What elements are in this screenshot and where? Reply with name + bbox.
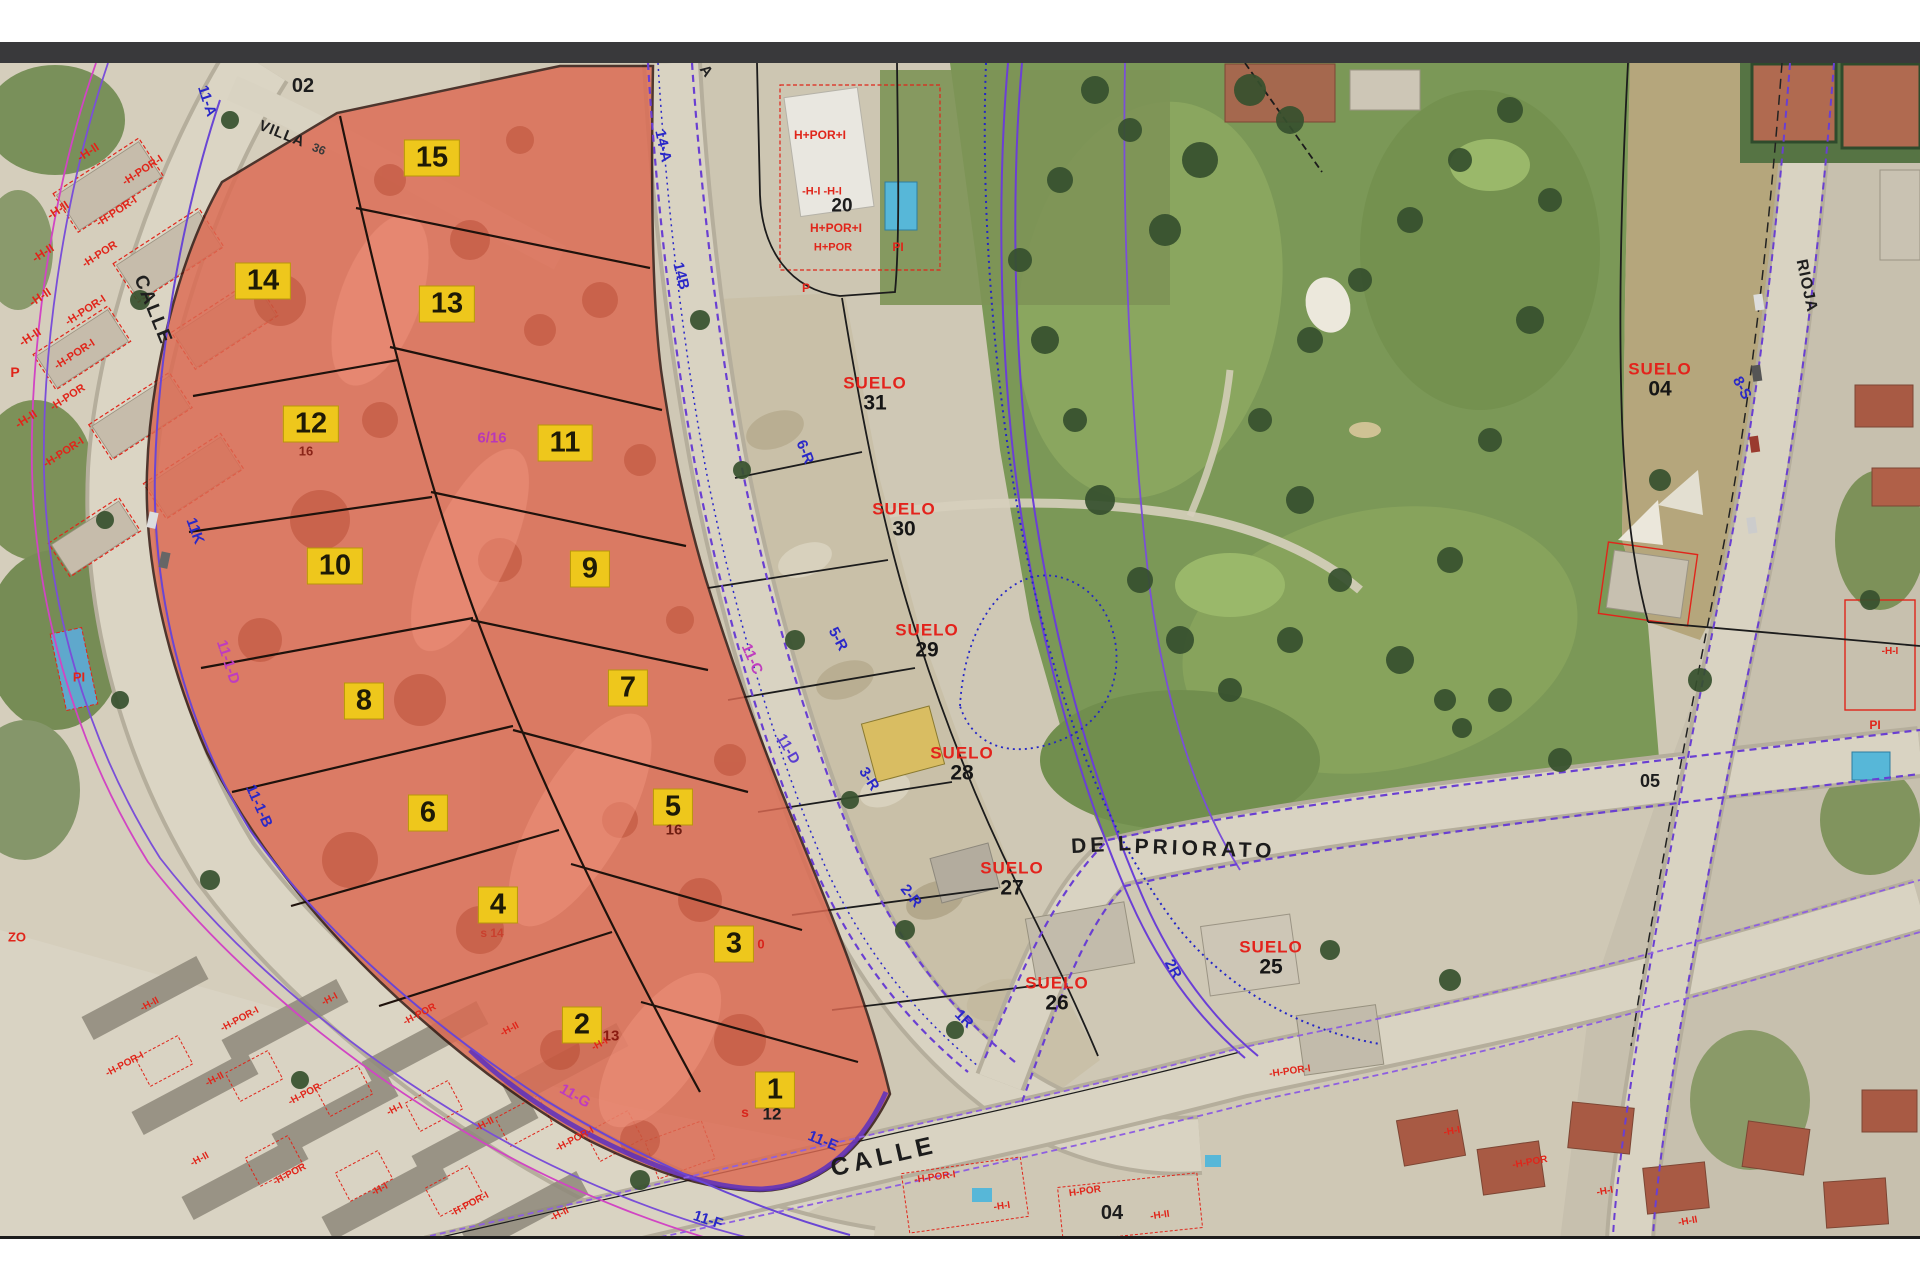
cadastral-annotation: -H-POR-I (64, 294, 108, 328)
road-code-label: 2-R (898, 882, 925, 910)
cadastral-annotation: -H-II (139, 996, 161, 1014)
suelo-parcel-label: SUELO31 (843, 375, 907, 414)
cadastral-annotation: PI (892, 241, 903, 253)
parcel-label: 13 (419, 286, 475, 323)
parcel-label: 6 (408, 795, 448, 832)
parcel-label: 3 (714, 926, 754, 963)
cadastral-annotation: -H-II (474, 1116, 496, 1134)
map-number-label: A (697, 62, 716, 79)
street-name-label: CALLE (130, 272, 175, 347)
cadastral-annotation: -H-I -H-I (802, 187, 842, 198)
road-code-label: 6-R (794, 438, 817, 466)
parcel-label: 5 (653, 789, 693, 826)
cadastral-annotation: -H-II (204, 1071, 226, 1089)
parcel-label: 14 (235, 263, 291, 300)
road-code-label: 2R (1162, 957, 1184, 981)
cadastral-annotation: P (10, 365, 19, 379)
cadastral-annotation: -H-II (499, 1021, 521, 1039)
road-code-label: 11-D (774, 732, 803, 767)
cadastral-annotation: -H-I (385, 1102, 404, 1119)
window-title-bar (0, 42, 1920, 63)
road-code-label: 14-A (652, 129, 673, 164)
suelo-word: SUELO (1628, 361, 1692, 378)
suelo-word: SUELO (930, 745, 994, 762)
suelo-word: SUELO (980, 860, 1044, 877)
parcel-label: 7 (608, 670, 648, 707)
cadastral-annotation: -H-II (17, 326, 43, 349)
parcel-sub-number: 16 (299, 445, 313, 458)
cadastral-annotation: -H-II (45, 199, 71, 222)
cadastral-annotation: -H-POR-I (121, 154, 165, 188)
map-number-label: 05 (1640, 772, 1660, 790)
road-code-label: 11-1-B (243, 782, 275, 829)
cadastral-annotation: H+POR+I (794, 129, 846, 141)
road-code-label: 11-A (195, 84, 219, 119)
suelo-parcel-label: SUELO27 (980, 860, 1044, 899)
cadastral-annotation: -H-POR (1512, 1155, 1549, 1171)
cadastral-annotation: -H-II (1150, 1210, 1171, 1223)
parcel-label: 4 (478, 887, 518, 924)
cadastral-annotation: -H-I (1443, 1126, 1461, 1139)
street-name-label: DE L (1071, 833, 1136, 857)
road-code-label: 5-R (826, 625, 851, 653)
suelo-number: 28 (930, 763, 994, 784)
road-code-label: 11-1-D (214, 638, 242, 685)
road-code-label: 11-F (691, 1208, 724, 1232)
parcel-sub-number: s 14 (480, 927, 503, 939)
suelo-number: 26 (1025, 993, 1089, 1014)
cadastral-annotation: -H-II (30, 242, 56, 265)
cadastral-annotation: PI (1869, 719, 1880, 731)
parcel-label: 12 (283, 406, 339, 443)
parcel-label: 10 (307, 548, 363, 585)
suelo-number: 31 (843, 393, 907, 414)
suelo-word: SUELO (1025, 975, 1089, 992)
road-code-label: 3-R (856, 765, 882, 793)
cadastral-annotation: -H-II (1678, 1215, 1699, 1228)
parcel-sub-number: 6/16 (477, 431, 506, 446)
cadastral-annotation: -H-POR-I (95, 195, 139, 229)
map-number-label: 02 (292, 76, 314, 96)
map-number-label: 20 (831, 197, 852, 216)
suelo-parcel-label: SUELO30 (872, 501, 936, 540)
parcel-sub-number: 16 (666, 823, 683, 838)
cadastral-annotation: -H-I (1596, 1186, 1614, 1199)
cadastral-annotation: -H-POR-I (449, 1191, 490, 1219)
parcel-sub-number: 0 (757, 938, 764, 951)
parcel-sub-number: 12 (763, 1106, 782, 1123)
cadastral-annotation: -H-POR (81, 240, 120, 271)
cadastral-annotation: -H-POR-I (42, 436, 86, 470)
cadastral-annotation: -H-II (27, 286, 53, 309)
cadastral-annotation: -H-POR-I (104, 1051, 145, 1079)
cadastral-annotation: P (802, 282, 810, 294)
road-code-label: 14B (670, 261, 691, 291)
suelo-number: 29 (895, 640, 959, 661)
suelo-number: 04 (1628, 379, 1692, 400)
road-code-label: 11-G (557, 1081, 593, 1110)
map-labels-layer: 1234567891011121314156/161616013s 14s12S… (0, 0, 1920, 1280)
cadastral-annotation: -H-POR-I (914, 1170, 957, 1186)
road-code-label: 11-C (739, 641, 766, 676)
suelo-word: SUELO (872, 501, 936, 518)
cadastral-annotation: -H-POR-I (554, 1126, 595, 1154)
suelo-word: SUELO (1239, 939, 1303, 956)
cadastral-annotation: -H-II (549, 1206, 571, 1224)
cadastral-annotation: -H-II (13, 408, 39, 431)
suelo-parcel-label: SUELO04 (1628, 361, 1692, 400)
map-viewport[interactable]: 1234567891011121314156/161616013s 14s12S… (0, 0, 1920, 1280)
cadastral-annotation: -H-I (320, 992, 339, 1009)
parcel-sub-number: s (741, 1105, 749, 1119)
street-name-label: RIOJA (1793, 258, 1820, 314)
top-white-strip (0, 0, 1920, 42)
suelo-parcel-label: SUELO29 (895, 622, 959, 661)
cadastral-annotation: -H-POR-I (53, 338, 97, 372)
map-number-label: 36 (311, 141, 328, 157)
cadastral-annotation: -H-II (189, 1151, 211, 1169)
road-code-label: 8-S (1730, 374, 1754, 402)
suelo-parcel-label: SUELO28 (930, 745, 994, 784)
cadastral-annotation: -H-POR (402, 1002, 438, 1028)
cadastral-annotation: H+POR (814, 243, 852, 254)
cadastral-annotation: -H-I (1882, 647, 1899, 657)
parcel-label: 9 (570, 551, 610, 588)
road-code-label: 11K (183, 516, 206, 546)
suelo-parcel-label: SUELO25 (1239, 939, 1303, 978)
parcel-label: 8 (344, 683, 384, 720)
suelo-number: 30 (872, 519, 936, 540)
cadastral-annotation: -H-POR-I (219, 1006, 260, 1034)
cadastral-annotation: ZO (8, 931, 26, 944)
bottom-white-strip (0, 1239, 1920, 1280)
cadastral-annotation: H+POR+I (810, 222, 862, 234)
cadastral-annotation: -H-POR-I (1269, 1064, 1312, 1080)
parcel-label: 11 (538, 425, 593, 462)
cadastral-annotation: -H-I (993, 1201, 1011, 1213)
road-code-label: 11-E (806, 1128, 840, 1153)
suelo-number: 25 (1239, 957, 1303, 978)
cadastral-annotation: -H-POR (49, 383, 88, 414)
parcel-label: 15 (404, 140, 460, 177)
cadastral-annotation: -H-I (370, 1182, 389, 1199)
cadastral-annotation: PI (73, 671, 85, 684)
street-name-label: PRIORATO (1134, 836, 1276, 862)
cadastral-annotation: H-POR (1068, 1185, 1101, 1199)
parcel-label: 1 (755, 1072, 795, 1109)
parcel-label: 2 (562, 1007, 602, 1044)
suelo-number: 27 (980, 878, 1044, 899)
road-code-label: 1R (952, 1007, 976, 1031)
suelo-parcel-label: SUELO26 (1025, 975, 1089, 1014)
cadastral-annotation: -H-POR (272, 1162, 308, 1188)
suelo-word: SUELO (843, 375, 907, 392)
street-name-label: VILLA (257, 118, 307, 150)
cadastral-annotation: -H-II (75, 141, 101, 164)
cadastral-annotation: -H-POR (287, 1082, 323, 1108)
map-number-label: 04 (1101, 1203, 1123, 1223)
screenshot-root: 1234567891011121314156/161616013s 14s12S… (0, 0, 1920, 1280)
suelo-word: SUELO (895, 622, 959, 639)
